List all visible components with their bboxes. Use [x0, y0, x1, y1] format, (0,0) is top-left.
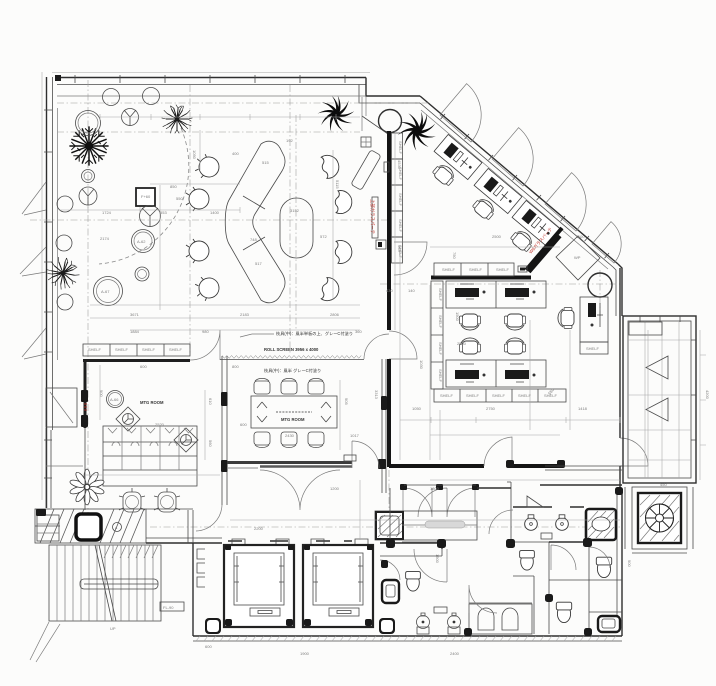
- svg-text:SHELF: SHELF: [469, 267, 482, 272]
- svg-text:SHELF: SHELF: [586, 346, 599, 351]
- svg-text:550: 550: [176, 196, 183, 201]
- svg-text:553: 553: [160, 210, 167, 215]
- svg-text:2430: 2430: [285, 433, 295, 438]
- svg-text:1030: 1030: [419, 360, 424, 370]
- svg-text:610: 610: [208, 398, 213, 405]
- svg-text:SHELF: SHELF: [438, 288, 443, 301]
- svg-text:1400: 1400: [210, 210, 220, 215]
- svg-text:SHELF: SHELF: [492, 393, 505, 398]
- svg-text:2174: 2174: [100, 236, 110, 241]
- svg-text:F+60: F+60: [141, 194, 151, 199]
- svg-text:A-62: A-62: [137, 239, 146, 244]
- svg-text:SHELF: SHELF: [398, 167, 403, 180]
- svg-text:4530: 4530: [397, 160, 402, 170]
- svg-text:SHELF: SHELF: [398, 141, 403, 154]
- svg-text:3152: 3152: [290, 208, 300, 213]
- svg-text:2520: 2520: [155, 422, 165, 427]
- svg-text:1050: 1050: [192, 150, 197, 160]
- svg-text:2200: 2200: [254, 526, 264, 531]
- svg-text:FL-90: FL-90: [163, 605, 174, 610]
- svg-text:1500: 1500: [435, 554, 440, 564]
- svg-text:360: 360: [355, 329, 362, 334]
- svg-text:SHELF: SHELF: [169, 347, 182, 352]
- svg-text:SHELF: SHELF: [440, 393, 453, 398]
- svg-text:1200: 1200: [330, 486, 340, 491]
- svg-text:905: 905: [344, 398, 349, 405]
- svg-text:上部ガラスパーテ: 上部ガラスパーテ: [369, 199, 376, 235]
- svg-text:748: 748: [250, 237, 257, 242]
- svg-text:600: 600: [205, 644, 212, 649]
- svg-text:MTG ROOM: MTG ROOM: [140, 400, 164, 405]
- svg-text:4200: 4200: [705, 390, 710, 400]
- svg-text:800: 800: [232, 364, 239, 369]
- svg-text:750: 750: [452, 252, 457, 259]
- svg-text:UP: UP: [110, 626, 116, 631]
- svg-text:2806: 2806: [330, 312, 340, 317]
- svg-text:1900: 1900: [300, 651, 310, 656]
- svg-text:SHELF: SHELF: [398, 219, 403, 232]
- svg-text:140: 140: [408, 288, 415, 293]
- svg-text:450: 450: [660, 482, 667, 487]
- svg-text:2400: 2400: [450, 651, 460, 656]
- svg-text:ROLL SCREEN 3956 x 4000: ROLL SCREEN 3956 x 4000: [264, 347, 319, 352]
- svg-text:2500: 2500: [492, 234, 502, 239]
- svg-text:3671: 3671: [130, 312, 140, 317]
- svg-text:600: 600: [240, 422, 247, 427]
- svg-text:WP: WP: [574, 255, 581, 260]
- svg-text:SHELF: SHELF: [142, 347, 155, 352]
- svg-text:1724: 1724: [102, 210, 112, 215]
- svg-text:517: 517: [255, 261, 262, 266]
- svg-text:SHELF: SHELF: [438, 342, 443, 355]
- svg-text:3313: 3313: [374, 390, 379, 400]
- svg-text:600: 600: [140, 364, 147, 369]
- svg-text:572: 572: [320, 234, 327, 239]
- svg-text:1050: 1050: [412, 406, 422, 411]
- svg-text:515: 515: [262, 160, 269, 165]
- svg-text:SHELF: SHELF: [466, 393, 479, 398]
- svg-text:1017: 1017: [350, 433, 360, 438]
- svg-text:560: 560: [208, 440, 213, 447]
- svg-text:MTG ROOM: MTG ROOM: [281, 417, 305, 422]
- svg-text:A-67: A-67: [101, 289, 110, 294]
- svg-text:SHELF: SHELF: [438, 315, 443, 328]
- svg-text:1100: 1100: [576, 234, 585, 239]
- svg-text:1500: 1500: [455, 312, 460, 322]
- svg-text:SHELF: SHELF: [88, 347, 101, 352]
- svg-text:SHELF: SHELF: [115, 347, 128, 352]
- svg-text:SHELF: SHELF: [442, 267, 455, 272]
- svg-text:5115: 5115: [335, 180, 340, 189]
- svg-text:2183: 2183: [240, 312, 250, 317]
- svg-text:900: 900: [627, 560, 632, 567]
- svg-text:430: 430: [386, 288, 393, 293]
- svg-text:A-66: A-66: [110, 397, 119, 402]
- svg-text:枝具(中)：風半単板の上、グレーC付塗り: 枝具(中)：風半単板の上、グレーC付塗り: [276, 330, 353, 337]
- svg-text:1418: 1418: [578, 406, 588, 411]
- svg-text:963: 963: [397, 245, 402, 252]
- svg-text:SHELF: SHELF: [518, 393, 531, 398]
- svg-text:980: 980: [202, 329, 209, 334]
- svg-text:1884: 1884: [130, 329, 140, 334]
- svg-text:192: 192: [286, 138, 293, 143]
- svg-text:SHELF: SHELF: [398, 193, 403, 206]
- svg-text:1800: 1800: [430, 486, 440, 491]
- svg-text:SHELF: SHELF: [496, 267, 509, 272]
- svg-text:SHELF: SHELF: [438, 369, 443, 382]
- svg-text:枝具(中)：風半 グレーC付塗り: 枝具(中)：風半 グレーC付塗り: [264, 367, 321, 374]
- svg-text:850: 850: [170, 184, 177, 189]
- svg-text:2500: 2500: [457, 341, 467, 346]
- svg-text:900: 900: [99, 390, 104, 397]
- svg-text:2750: 2750: [486, 406, 496, 411]
- svg-text:400: 400: [232, 151, 239, 156]
